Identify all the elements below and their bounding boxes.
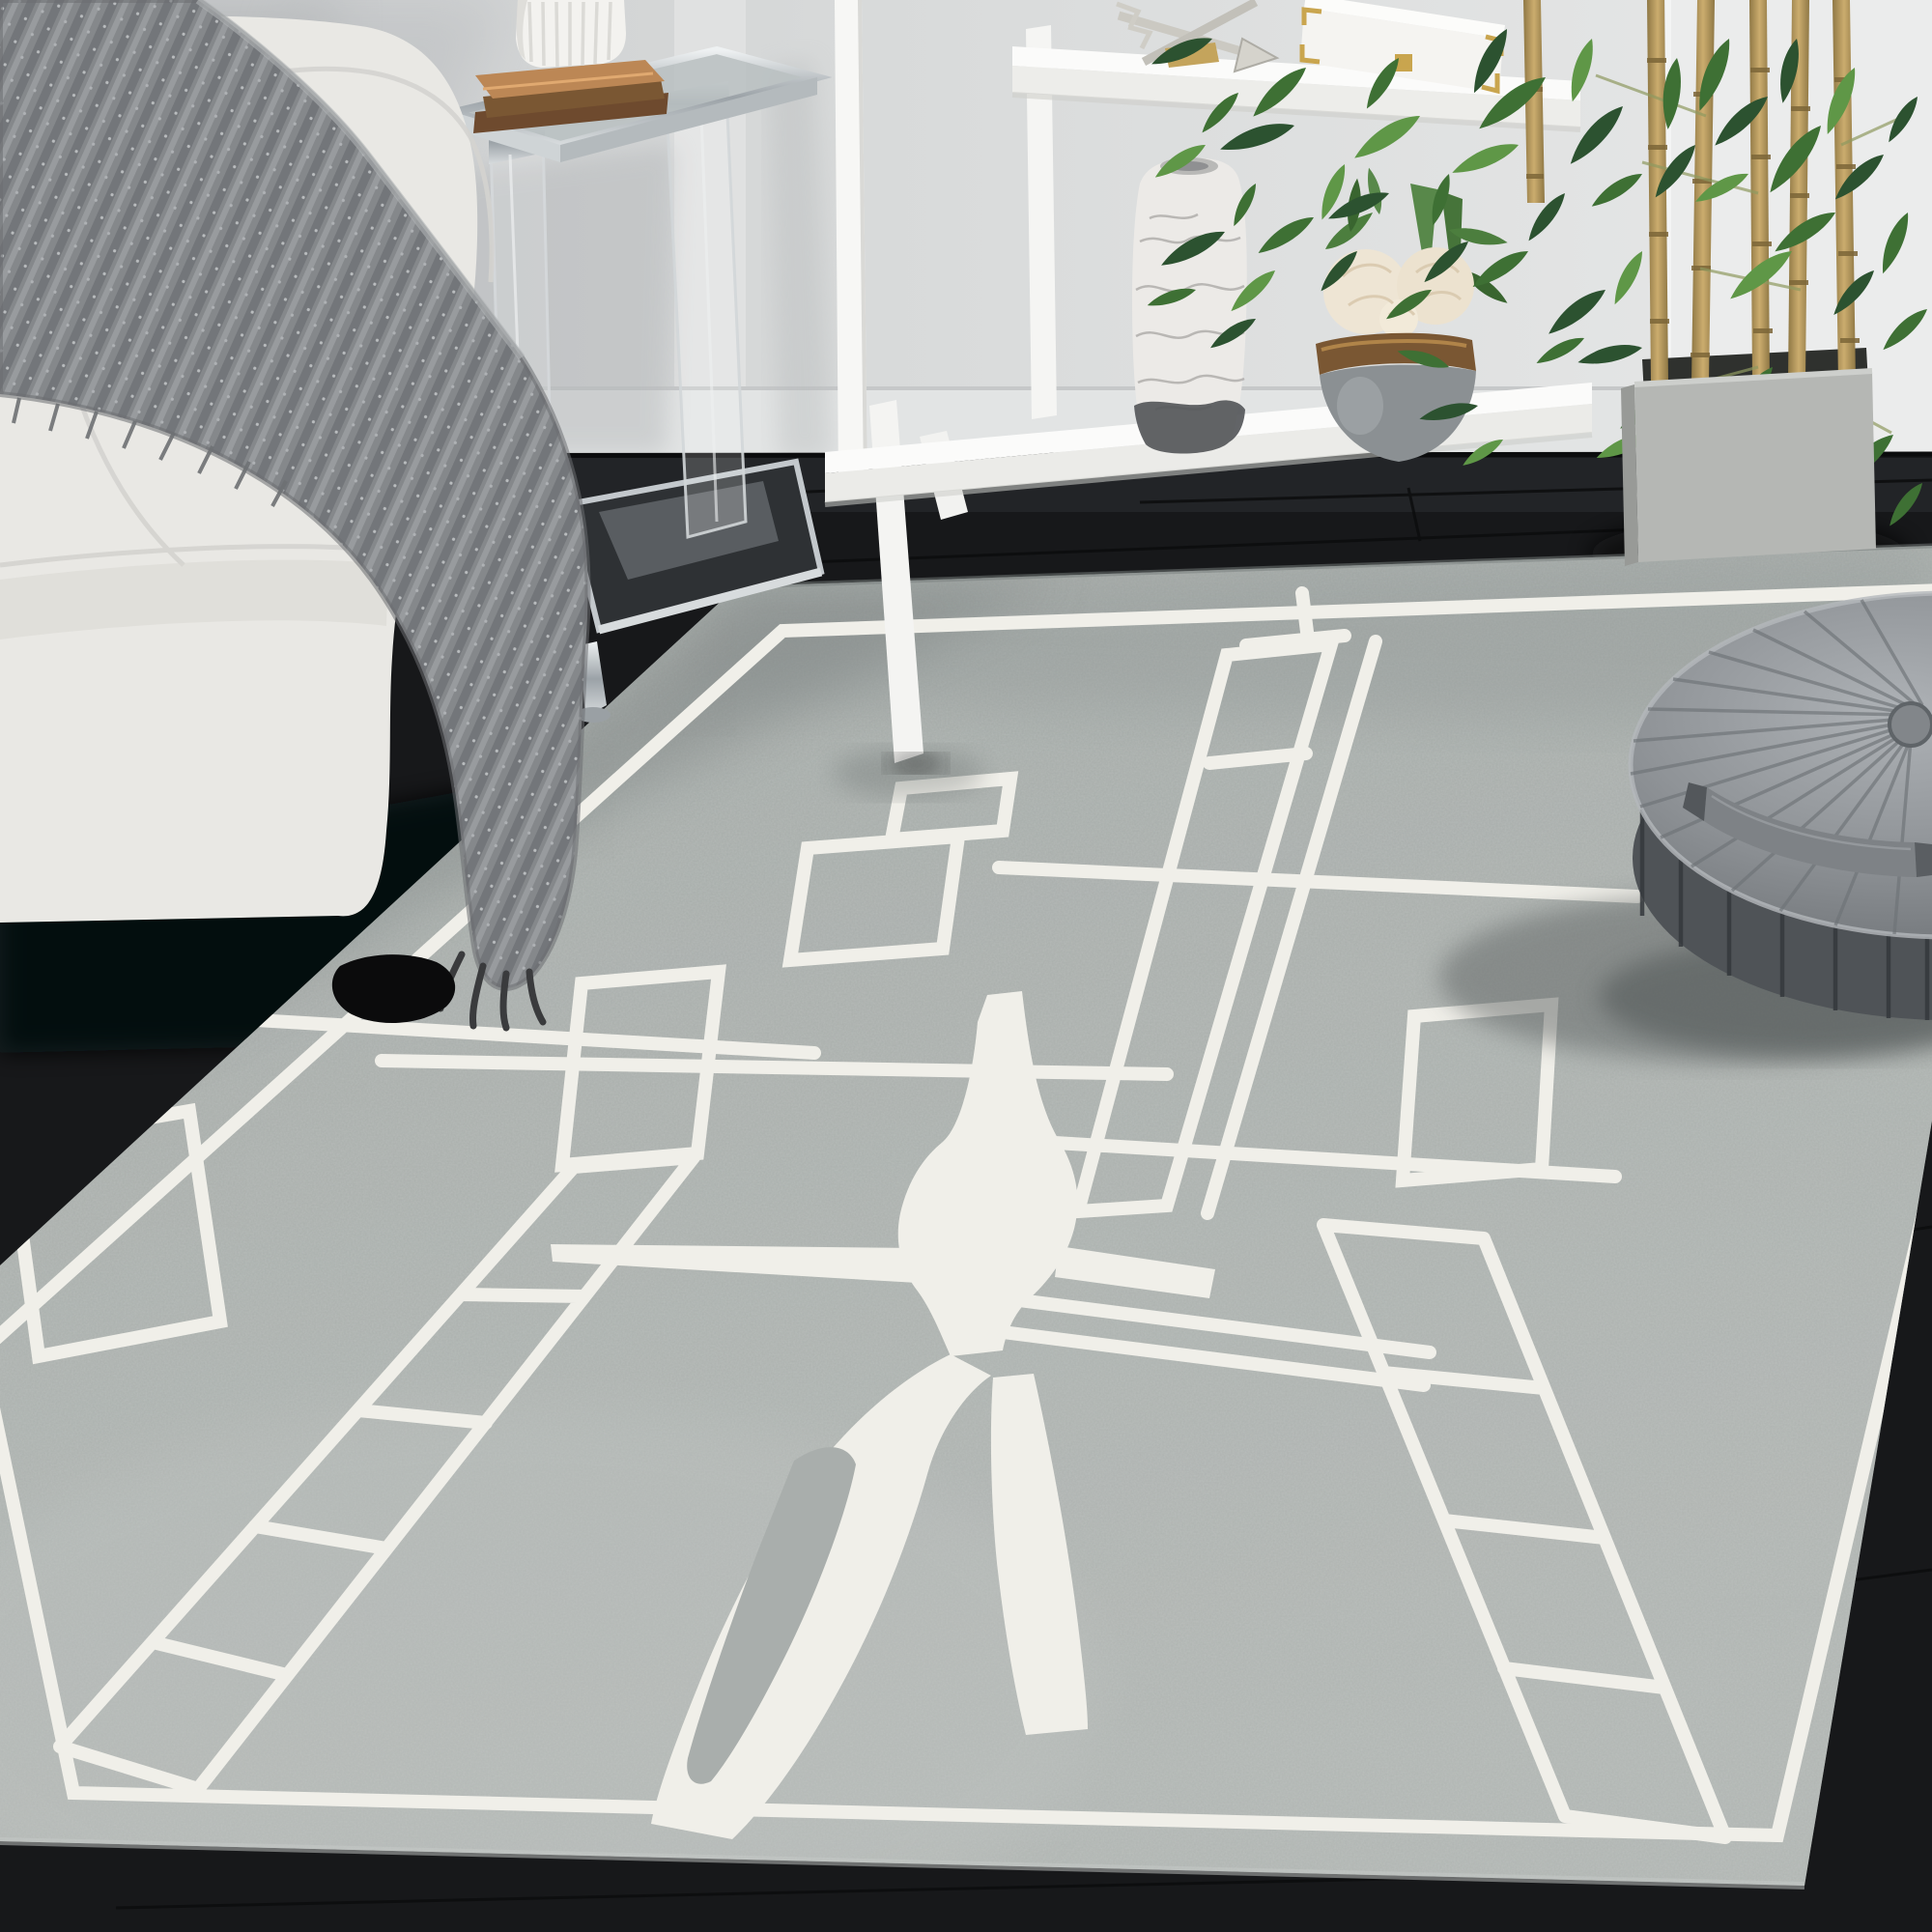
handle-end-right [1915, 842, 1932, 877]
marble-vase [1132, 157, 1247, 454]
flute-vase [516, 0, 626, 68]
planter-front-face [1634, 371, 1876, 562]
living-room-photo: Bright living room corner: white boucle … [0, 0, 1932, 1932]
pouf-center-button [1889, 703, 1932, 746]
concrete-planter [1621, 371, 1876, 566]
front-leg-shadow [887, 753, 945, 773]
bowl-highlight [1337, 377, 1383, 435]
